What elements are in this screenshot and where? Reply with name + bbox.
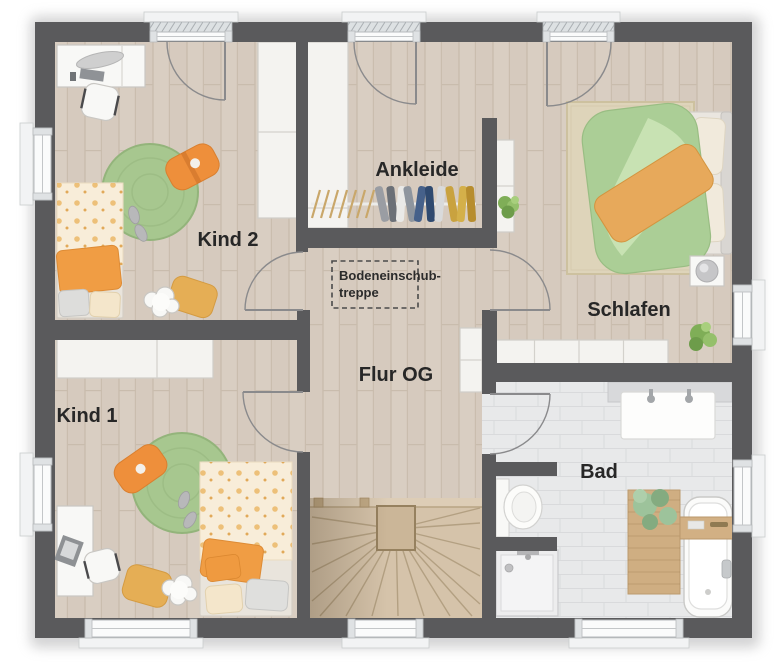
window-bottom-bad: [569, 619, 689, 648]
mouse: [70, 72, 76, 81]
wall-ankleide-flur: [297, 228, 497, 248]
shower-drain: [505, 564, 513, 572]
label-kind2: Kind 2: [197, 229, 258, 251]
window-left-kind1: [20, 453, 52, 536]
wall-kind2-ankleide: [296, 42, 308, 252]
wardrobe: [57, 338, 213, 378]
staircase: [310, 498, 482, 618]
label-kind1: Kind 1: [56, 405, 117, 427]
wall-schlafen-bad: [482, 363, 732, 382]
pillow: [205, 583, 243, 614]
wall-kind2-kind1: [55, 320, 308, 340]
label-flur: Flur OG: [359, 364, 433, 386]
nightstand: [690, 256, 724, 286]
pillow: [58, 289, 90, 317]
bed: [200, 462, 292, 616]
label-bad: Bad: [580, 461, 618, 483]
double-washbasin: [621, 392, 715, 439]
attic-ladder-label-line2: treppe: [339, 285, 379, 300]
shower: [496, 550, 558, 616]
vanity: [608, 382, 732, 439]
exterior-wall-left: [35, 22, 55, 638]
tub-drain: [705, 589, 711, 595]
window-left-kind2: [20, 123, 52, 205]
bathtub: [680, 497, 734, 617]
desk: [57, 45, 145, 87]
wall-toilet-niche-bottom: [482, 537, 557, 551]
pillow: [89, 291, 120, 318]
hall-cabinet: [460, 328, 482, 392]
window-right-schlafen: [733, 280, 765, 350]
window-bottom-kind1: [79, 619, 203, 648]
blanket: [56, 245, 122, 295]
floor-plan: Bodeneinschub- treppe: [0, 0, 775, 662]
tub-faucet: [722, 560, 731, 578]
wardrobe: [258, 42, 298, 218]
bed: [56, 183, 123, 318]
desk: [54, 506, 93, 596]
wall-ankleide-schlafen: [482, 118, 497, 248]
pillow: [245, 579, 289, 612]
desk-chair: [80, 82, 120, 122]
wardrobe: [307, 42, 348, 228]
double-bed: [579, 100, 732, 277]
window-bottom-stairs: [342, 619, 429, 648]
label-schlafen: Schlafen: [587, 299, 670, 321]
wall-toilet-niche-top: [482, 462, 557, 476]
pillow: [204, 554, 241, 582]
wall-flur-schlafen: [482, 310, 497, 363]
label-ankleide: Ankleide: [375, 159, 458, 181]
wall-bad-door-jamb: [482, 382, 496, 394]
sideboard: [490, 340, 668, 364]
wall-kind1-stairs: [297, 452, 310, 618]
wall-stairs-bad: [482, 454, 496, 618]
floor-plan-page: Bodeneinschub- treppe: [0, 0, 775, 662]
window-right-bad: [733, 455, 765, 537]
attic-ladder-label-line1: Bodeneinschub-: [339, 268, 441, 283]
